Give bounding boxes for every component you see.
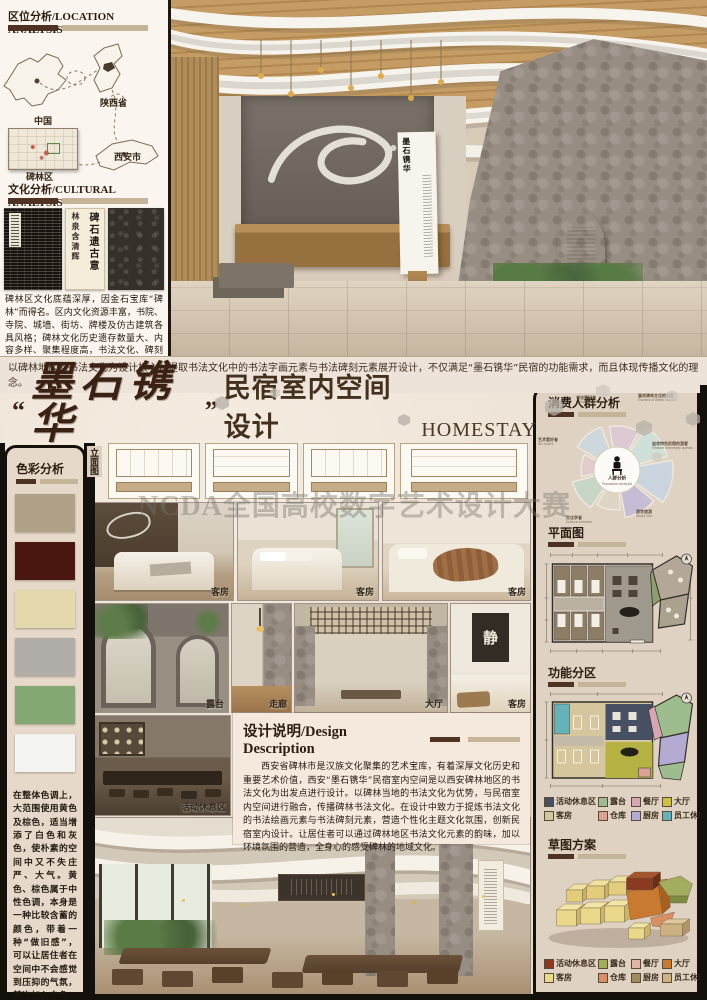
divider-bar-light <box>62 25 148 31</box>
legend-label: 活动休息区 <box>556 958 596 969</box>
legend-label: 活动休息区 <box>556 796 596 807</box>
design-description-block: 设计说明/Design Description 西安省碑林市是汉族文化聚集的艺术… <box>233 713 530 844</box>
stele-rubbing-image <box>108 208 164 290</box>
divider-bar-light <box>578 854 626 859</box>
divider-bar-light <box>578 682 626 687</box>
divider-bar-dark <box>548 542 574 547</box>
color-swatch <box>15 686 75 724</box>
pendant-lights <box>182 899 185 902</box>
elevation-drawing-3 <box>303 443 395 499</box>
legend-label: 厨房 <box>643 810 659 821</box>
pillows <box>260 552 285 562</box>
section-divider-bars <box>16 479 78 484</box>
legend-swatch <box>598 959 608 969</box>
floor-plan-drawing <box>541 550 696 656</box>
legend-label: 客房 <box>556 972 572 983</box>
photo-label: 客房 <box>356 585 374 598</box>
consumer-segment-label: 喜欢碑林文化的游客Tourists of Beilin culture <box>638 394 690 403</box>
color-analysis-panel: 色彩分析 在整体色调上，大范围使用黄色及棕色，适当增添了白色和灰色，使朴素的空间… <box>4 445 86 995</box>
dark-gutter <box>700 385 707 1000</box>
long-table <box>103 771 222 785</box>
legend-label: 仓库 <box>610 972 626 983</box>
window <box>336 508 374 568</box>
plants <box>188 608 228 636</box>
svg-text:Population analysis: Population analysis <box>602 482 632 486</box>
brand-sign-board: 墨石镌华 <box>397 131 437 274</box>
section-divider-bars <box>548 542 626 547</box>
stone-wall <box>264 604 291 688</box>
legend-swatch <box>544 973 554 983</box>
legend-swatch <box>662 959 672 969</box>
hall-photo: 大厅 <box>295 604 447 712</box>
legend-swatch <box>662 811 672 821</box>
legend-label: 大厅 <box>674 958 690 969</box>
divider-bar-light <box>40 479 78 484</box>
consumer-flower-chart: 人群分析 Population analysis <box>541 418 693 522</box>
color-swatch <box>15 734 75 772</box>
dark-gutter <box>0 443 5 1000</box>
massing-sketch <box>541 862 696 954</box>
divider-bar-dark <box>548 854 574 859</box>
color-paragraph: 在整体色调上，大范围使用黄色及棕色，适当增添了白色和灰色，使朴素的空间中又不失庄… <box>13 790 77 1000</box>
photo-label: 客房 <box>211 585 229 598</box>
consumer-segment-label: 追求特色民宿的游客Feature homestay guests <box>652 442 704 451</box>
brand-sign-text: 墨石镌华 <box>400 137 412 173</box>
stone-bench <box>219 263 294 288</box>
location-analysis-title: 区位分析/LOCATION ANALYSIS <box>8 8 168 36</box>
plants <box>95 604 148 639</box>
legend-label: 大厅 <box>674 796 690 807</box>
hanging-lamp <box>259 608 261 625</box>
legend-label: 餐厅 <box>643 796 659 807</box>
map-label-shaanxi: 陕西省 <box>100 96 127 109</box>
legend-swatch <box>631 973 641 983</box>
wood-table <box>302 955 463 973</box>
lattice-skylight <box>310 607 432 634</box>
guestroom-photo-1: 客房 <box>95 503 233 600</box>
photo-label: 客房 <box>508 697 526 710</box>
elevation-drawing-1 <box>108 443 200 499</box>
title-subtitle: 民宿室内空间设计 <box>224 366 416 446</box>
photo-label: 客房 <box>508 585 526 598</box>
beilin-district-map <box>8 128 78 170</box>
title-name: 墨石镌华 <box>31 362 199 446</box>
photo-label: 活动休息区 <box>181 800 226 813</box>
zoning-title: 功能分区 <box>548 664 596 681</box>
tiled-floor <box>171 281 707 356</box>
title-subtitle-en: HOMESTAY <box>421 419 537 446</box>
bed-throw <box>457 691 491 708</box>
legend-swatch <box>631 811 641 821</box>
elevation-drawing-4 <box>400 443 528 499</box>
photo-label: 露台 <box>206 697 224 710</box>
calligraphy-column-left: 林泉含清辉 <box>70 212 81 286</box>
legend-label: 露台 <box>610 958 626 969</box>
design-description-paragraph: 西安省碑林市是汉族文化聚集的艺术宝库，有着深厚文化历史和重要艺术价值，西安“墨石… <box>243 761 520 856</box>
stone-wall <box>427 626 447 706</box>
legend-swatch <box>662 797 672 807</box>
color-swatch <box>15 638 75 676</box>
calligraphy-rubbing-image: 林泉含清辉 碑石遗古意 <box>65 208 105 290</box>
elevation-label: 立面图 <box>87 446 102 477</box>
divider-bar-dark <box>430 737 460 742</box>
legend-label: 客房 <box>556 810 572 821</box>
stone-wall <box>295 626 315 706</box>
pendant-lights <box>241 40 481 110</box>
legend-label: 露台 <box>610 796 626 807</box>
floor-plan-title: 平面图 <box>548 524 584 541</box>
color-swatch <box>15 494 75 532</box>
svg-text:人群分析: 人群分析 <box>607 475 627 482</box>
elevation-drawing-2 <box>205 443 298 499</box>
consumer-segment-label: 文化学者Culture scholars <box>566 516 618 525</box>
design-description-header: 设计说明/Design Description <box>243 720 520 758</box>
legend-swatch <box>598 973 608 983</box>
color-swatch <box>15 542 75 580</box>
terrace-photo: 露台 <box>95 604 228 712</box>
divider-bar-light <box>468 737 520 742</box>
legend-swatch <box>662 973 672 983</box>
guestroom-photo-4: 静 客房 <box>451 604 530 712</box>
location-culture-sidebar: 区位分析/LOCATION ANALYSIS 中国 陕西省 西安市 碑林区 文化… <box>0 0 168 356</box>
design-poster: 区位分析/LOCATION ANALYSIS 中国 陕西省 西安市 碑林区 文化… <box>0 0 707 1000</box>
section-divider-bars <box>8 25 148 31</box>
legend-label: 仓库 <box>610 810 626 821</box>
divider-bar-dark <box>8 25 58 31</box>
legend-swatch <box>544 797 554 807</box>
legend-swatch <box>631 797 641 807</box>
color-analysis-title: 色彩分析 <box>16 460 64 477</box>
chairs <box>112 969 142 985</box>
wood-table <box>119 948 272 964</box>
guestroom-photo-2: 客房 <box>238 503 378 600</box>
divider-bar-dark <box>548 682 574 687</box>
section-divider-bars <box>548 854 626 859</box>
sketch-title: 草图方案 <box>548 836 596 853</box>
divider-bar-dark <box>8 198 58 204</box>
bench <box>341 690 402 699</box>
calligraphy-artwork <box>278 874 365 900</box>
photo-label: 走廊 <box>269 697 287 710</box>
legend-swatch <box>544 959 554 969</box>
map-label-xian: 西安市 <box>114 150 141 163</box>
divider-bar-light <box>62 198 148 204</box>
legend-swatch <box>598 797 608 807</box>
map-label-china: 中国 <box>34 114 52 127</box>
legend-swatch <box>544 811 554 821</box>
title-quote-open: “ <box>12 396 25 426</box>
legend-swatch <box>631 959 641 969</box>
stools <box>109 789 125 797</box>
photo-label: 大厅 <box>425 697 443 710</box>
guestroom-photo-3: 客房 <box>383 503 530 600</box>
divider-bar-light <box>578 412 626 417</box>
legend-label: 餐厅 <box>643 958 659 969</box>
hanging-scroll <box>478 860 504 930</box>
stone-arch <box>180 639 215 704</box>
zoning-legend: 活动休息区 露台 餐厅 大厅 客房 仓库 厨房 员工休息区 <box>544 796 694 821</box>
legend-swatch <box>598 811 608 821</box>
consumer-segment-label: 游学旅游Study tour <box>636 510 688 519</box>
color-swatch <box>15 590 75 628</box>
section-divider-bars <box>8 198 148 204</box>
calligraphy-artwork: 静 <box>472 613 510 663</box>
sketch-legend: 活动休息区 露台 餐厅 大厅 客房 仓库 厨房 员工休息区 <box>544 958 694 983</box>
cultural-analysis-title: 文化分析/CULTURAL ANALYSIS <box>8 181 168 209</box>
stone-rubbing-image <box>4 208 62 290</box>
analysis-panel: 消费人群分析 人群分析 Popu <box>533 385 700 995</box>
dark-gutter <box>84 443 95 1000</box>
divider-bar-dark <box>16 479 36 484</box>
design-description-title: 设计说明/Design Description <box>243 720 422 758</box>
dark-gutter <box>0 994 707 1000</box>
corridor-photo: 走廊 <box>232 604 291 712</box>
zoning-plan-drawing <box>541 690 696 790</box>
pillows <box>398 548 427 560</box>
section-divider-bars <box>548 682 626 687</box>
divider-bar-light <box>578 542 626 547</box>
calligraphy-column-right: 碑石遗古意 <box>85 212 100 286</box>
lobby-render-image: 墨石镌华 <box>168 0 707 356</box>
display-shelf <box>99 722 145 756</box>
legend-label: 厨房 <box>643 972 659 983</box>
wood-slat-wall <box>171 57 219 306</box>
consumer-segment-label: 艺术爱好者Art lovers <box>538 438 590 447</box>
sign-small-text <box>422 174 433 257</box>
activity-area-photo: 活动休息区 <box>95 716 230 815</box>
